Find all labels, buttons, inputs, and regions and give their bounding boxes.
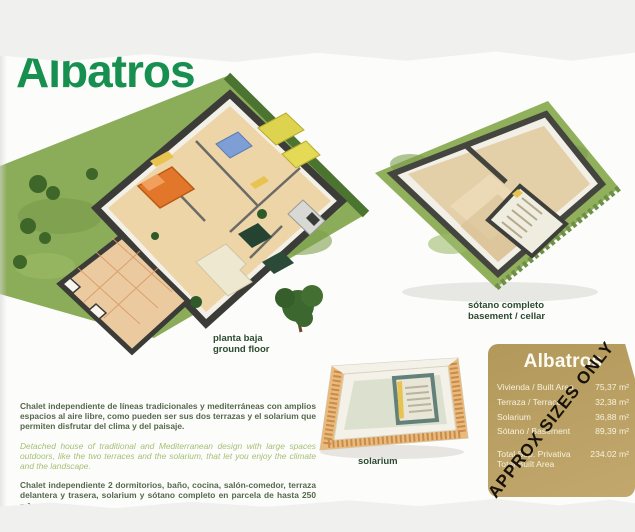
solarium-svg [298, 348, 482, 462]
solarium-illustration [298, 348, 482, 467]
total-value: 234.02 m² [590, 449, 629, 469]
solarium-caption: solarium [358, 457, 398, 468]
description-es-1: Chalet independiente de líneas tradicion… [20, 401, 316, 432]
row-value: 36,88 m² [595, 410, 629, 425]
description-en-1: Detached house of traditional and Medite… [20, 441, 316, 472]
ground-floor-caption: planta baja ground floor [213, 334, 269, 355]
ground-floor-plan-illustration [0, 66, 378, 361]
torn-paper-edge-top [0, 0, 635, 66]
tree [275, 285, 323, 332]
basement-plan-illustration [370, 94, 635, 311]
row-value: 32,38 m² [595, 395, 629, 410]
brochure-page: Albatros [0, 0, 635, 532]
row-value: 75,37 m² [595, 380, 629, 395]
caption-line-es: planta baja [213, 334, 269, 345]
basement-caption: sótano completo basement / cellar [468, 301, 545, 322]
caption-line: solarium [358, 457, 398, 468]
scan-shadow-left [0, 0, 7, 532]
ground-floor-plan-svg [0, 66, 378, 356]
caption-line-en: ground floor [213, 345, 269, 356]
basement-plan-svg [370, 94, 635, 306]
table-row: Sótano / Basement 89,39 m² [497, 424, 629, 439]
row-label: Solarium [497, 410, 531, 425]
row-value: 89,39 m² [595, 424, 629, 439]
caption-line-es: sótano completo [468, 301, 545, 312]
caption-line-en: basement / cellar [468, 312, 545, 323]
